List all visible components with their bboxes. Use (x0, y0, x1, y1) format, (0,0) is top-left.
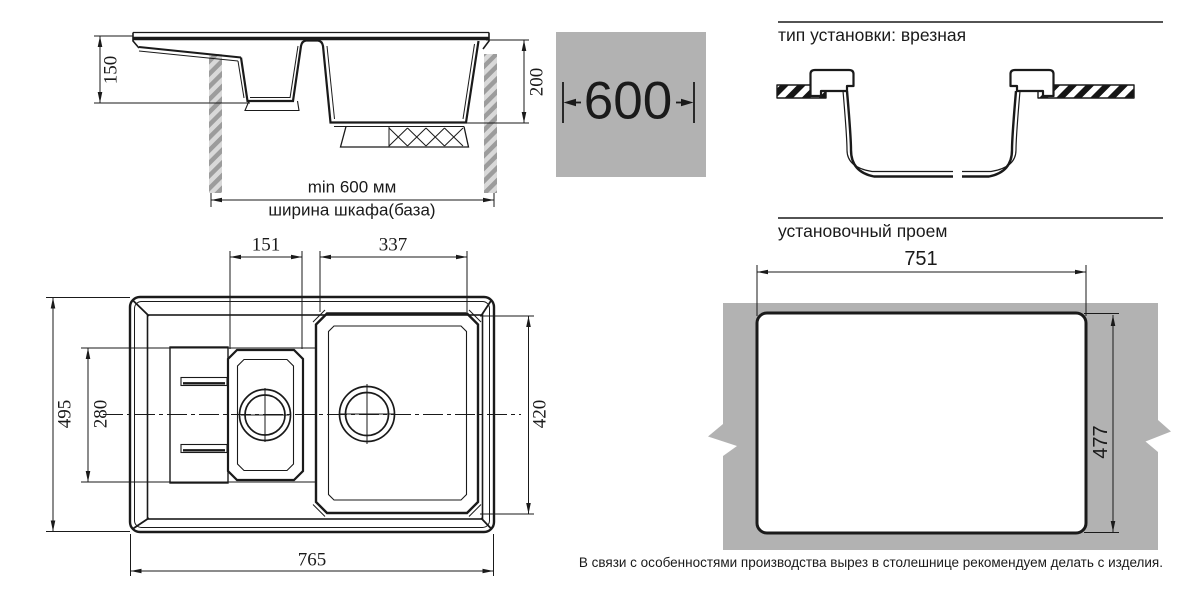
dim-200-label: 200 (528, 68, 547, 97)
dim-751-label: 751 (904, 249, 937, 269)
sink-spec-sheet: 150 200 min 600 мм ширина шкафа(база) 60… (0, 0, 1203, 606)
dim-151-label: 151 (252, 236, 281, 255)
installation-type-heading: тип установки: врезная (778, 27, 966, 45)
cutout-rect (757, 313, 1086, 533)
dim-337-lines (320, 251, 467, 312)
cabinet-wall-left (209, 54, 222, 193)
install-profile-drawing (777, 70, 1134, 177)
min-cabinet-width-label: min 600 мм (308, 179, 397, 196)
dim-420-label: 420 (531, 400, 550, 429)
plan-view-drawing (46, 251, 534, 576)
section-rules (778, 22, 1163, 218)
dim-337-label: 337 (379, 236, 408, 255)
opening-drawing (708, 265, 1171, 550)
dim-280-label: 280 (92, 400, 111, 429)
dim-765-label: 765 (298, 551, 327, 570)
cabinet-width-caption: ширина шкафа(база) (268, 202, 435, 219)
dim-150-label: 150 (102, 56, 121, 85)
cutout-heading: установочный проем (778, 223, 947, 241)
production-note: В связи с особенностями производства выр… (579, 556, 1163, 570)
dim-495-label: 495 (56, 400, 75, 429)
badge-600-label: 600 (584, 75, 672, 128)
dim-477-label: 477 (1091, 425, 1111, 458)
dim-151-lines (230, 251, 302, 349)
